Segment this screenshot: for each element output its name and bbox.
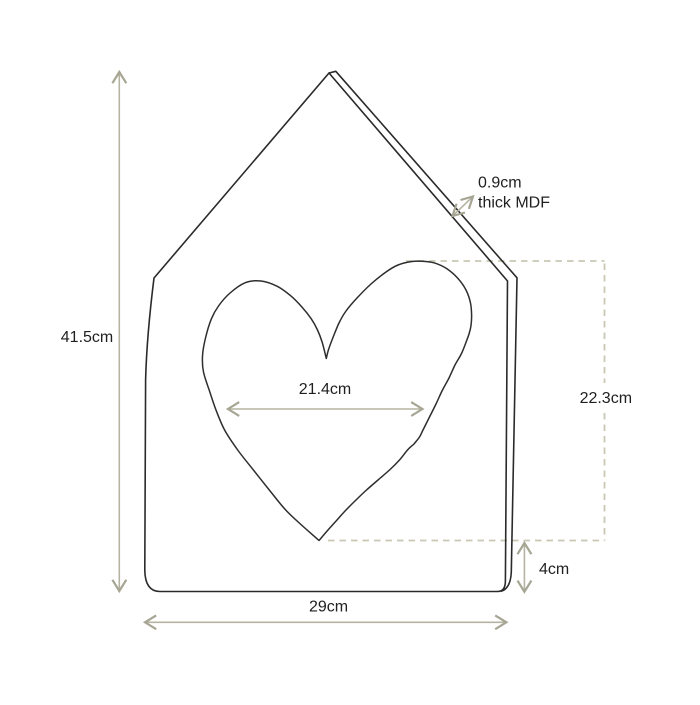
svg-text:41.5cm: 41.5cm [61, 329, 113, 346]
svg-text:4cm: 4cm [539, 561, 569, 578]
svg-text:0.9cm: 0.9cm [478, 175, 522, 192]
svg-text:22.3cm: 22.3cm [580, 390, 632, 407]
svg-text:21.4cm: 21.4cm [299, 381, 351, 398]
svg-text:29cm: 29cm [309, 599, 348, 616]
svg-text:thick MDF: thick MDF [478, 195, 550, 212]
